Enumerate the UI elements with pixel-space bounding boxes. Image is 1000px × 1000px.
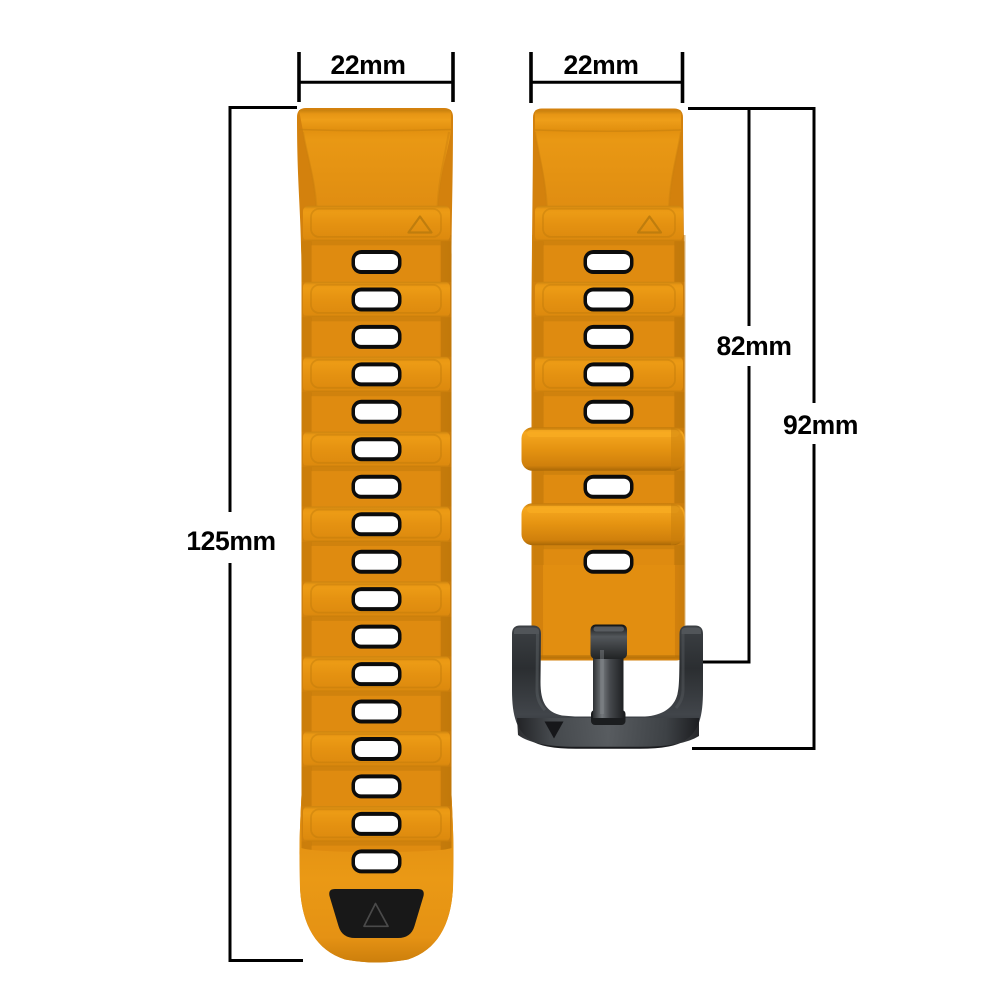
svg-text:125mm: 125mm <box>186 526 275 556</box>
svg-text:22mm: 22mm <box>563 50 638 80</box>
svg-text:92mm: 92mm <box>783 410 858 440</box>
svg-text:82mm: 82mm <box>716 331 791 361</box>
svg-text:22mm: 22mm <box>330 50 405 80</box>
